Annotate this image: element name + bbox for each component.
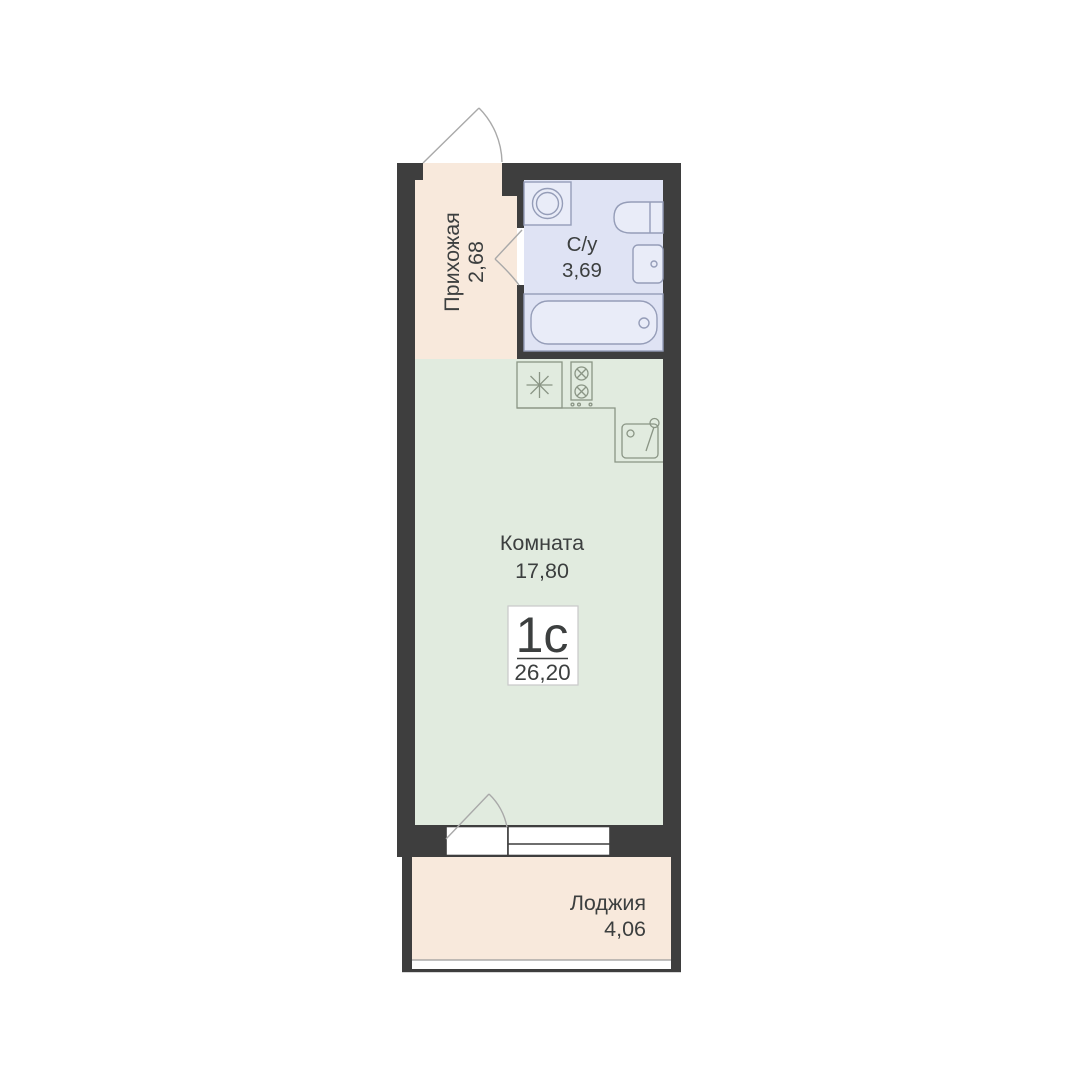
unit-badge: 1с 26,20 <box>508 606 578 685</box>
floor-plan: Прихожая 2,68 С/у 3,69 Комната 17,80 Лод… <box>0 0 1080 1080</box>
living-room-label: Комната <box>500 531 584 555</box>
loggia-glazing <box>412 960 671 969</box>
wall-entry-column <box>502 163 524 196</box>
toilet-icon <box>614 202 663 233</box>
wall-bath-divider-upper <box>517 196 524 228</box>
floor-plan-canvas: Прихожая 2,68 С/у 3,69 Комната 17,80 Лод… <box>0 0 1080 1080</box>
loggia-area-label: 4,06 <box>604 917 646 941</box>
hallway-label: Прихожая <box>440 212 464 312</box>
wall-top-left <box>397 163 423 180</box>
unit-type-label: 1с <box>516 607 569 663</box>
wall-loggia-left <box>402 857 412 969</box>
wall-left <box>397 163 415 857</box>
unit-total-area-label: 26,20 <box>514 660 570 685</box>
wall-loggia-right <box>671 857 681 969</box>
bathtub-icon <box>524 294 663 351</box>
wall-bath-divider-lower <box>517 285 524 351</box>
washing-machine-icon <box>524 182 571 225</box>
window-icon <box>508 827 610 856</box>
entrance-door-swing-icon <box>423 108 502 163</box>
living-room-area <box>415 359 663 825</box>
loggia-parapet-line <box>402 969 681 972</box>
wall-bath-bottom <box>517 351 663 359</box>
wall-top-right <box>502 163 681 180</box>
loggia-label: Лоджия <box>570 891 646 915</box>
bathroom-label: С/у <box>567 233 599 256</box>
balcony-door-icon <box>446 827 508 856</box>
living-room-area-label: 17,80 <box>515 559 569 583</box>
bathroom-area-label: 3,69 <box>562 259 602 282</box>
entrance-opening <box>423 163 502 181</box>
hallway-area-label: 2,68 <box>464 241 488 283</box>
bathroom-sink-icon <box>633 245 663 283</box>
wall-right <box>663 163 681 857</box>
